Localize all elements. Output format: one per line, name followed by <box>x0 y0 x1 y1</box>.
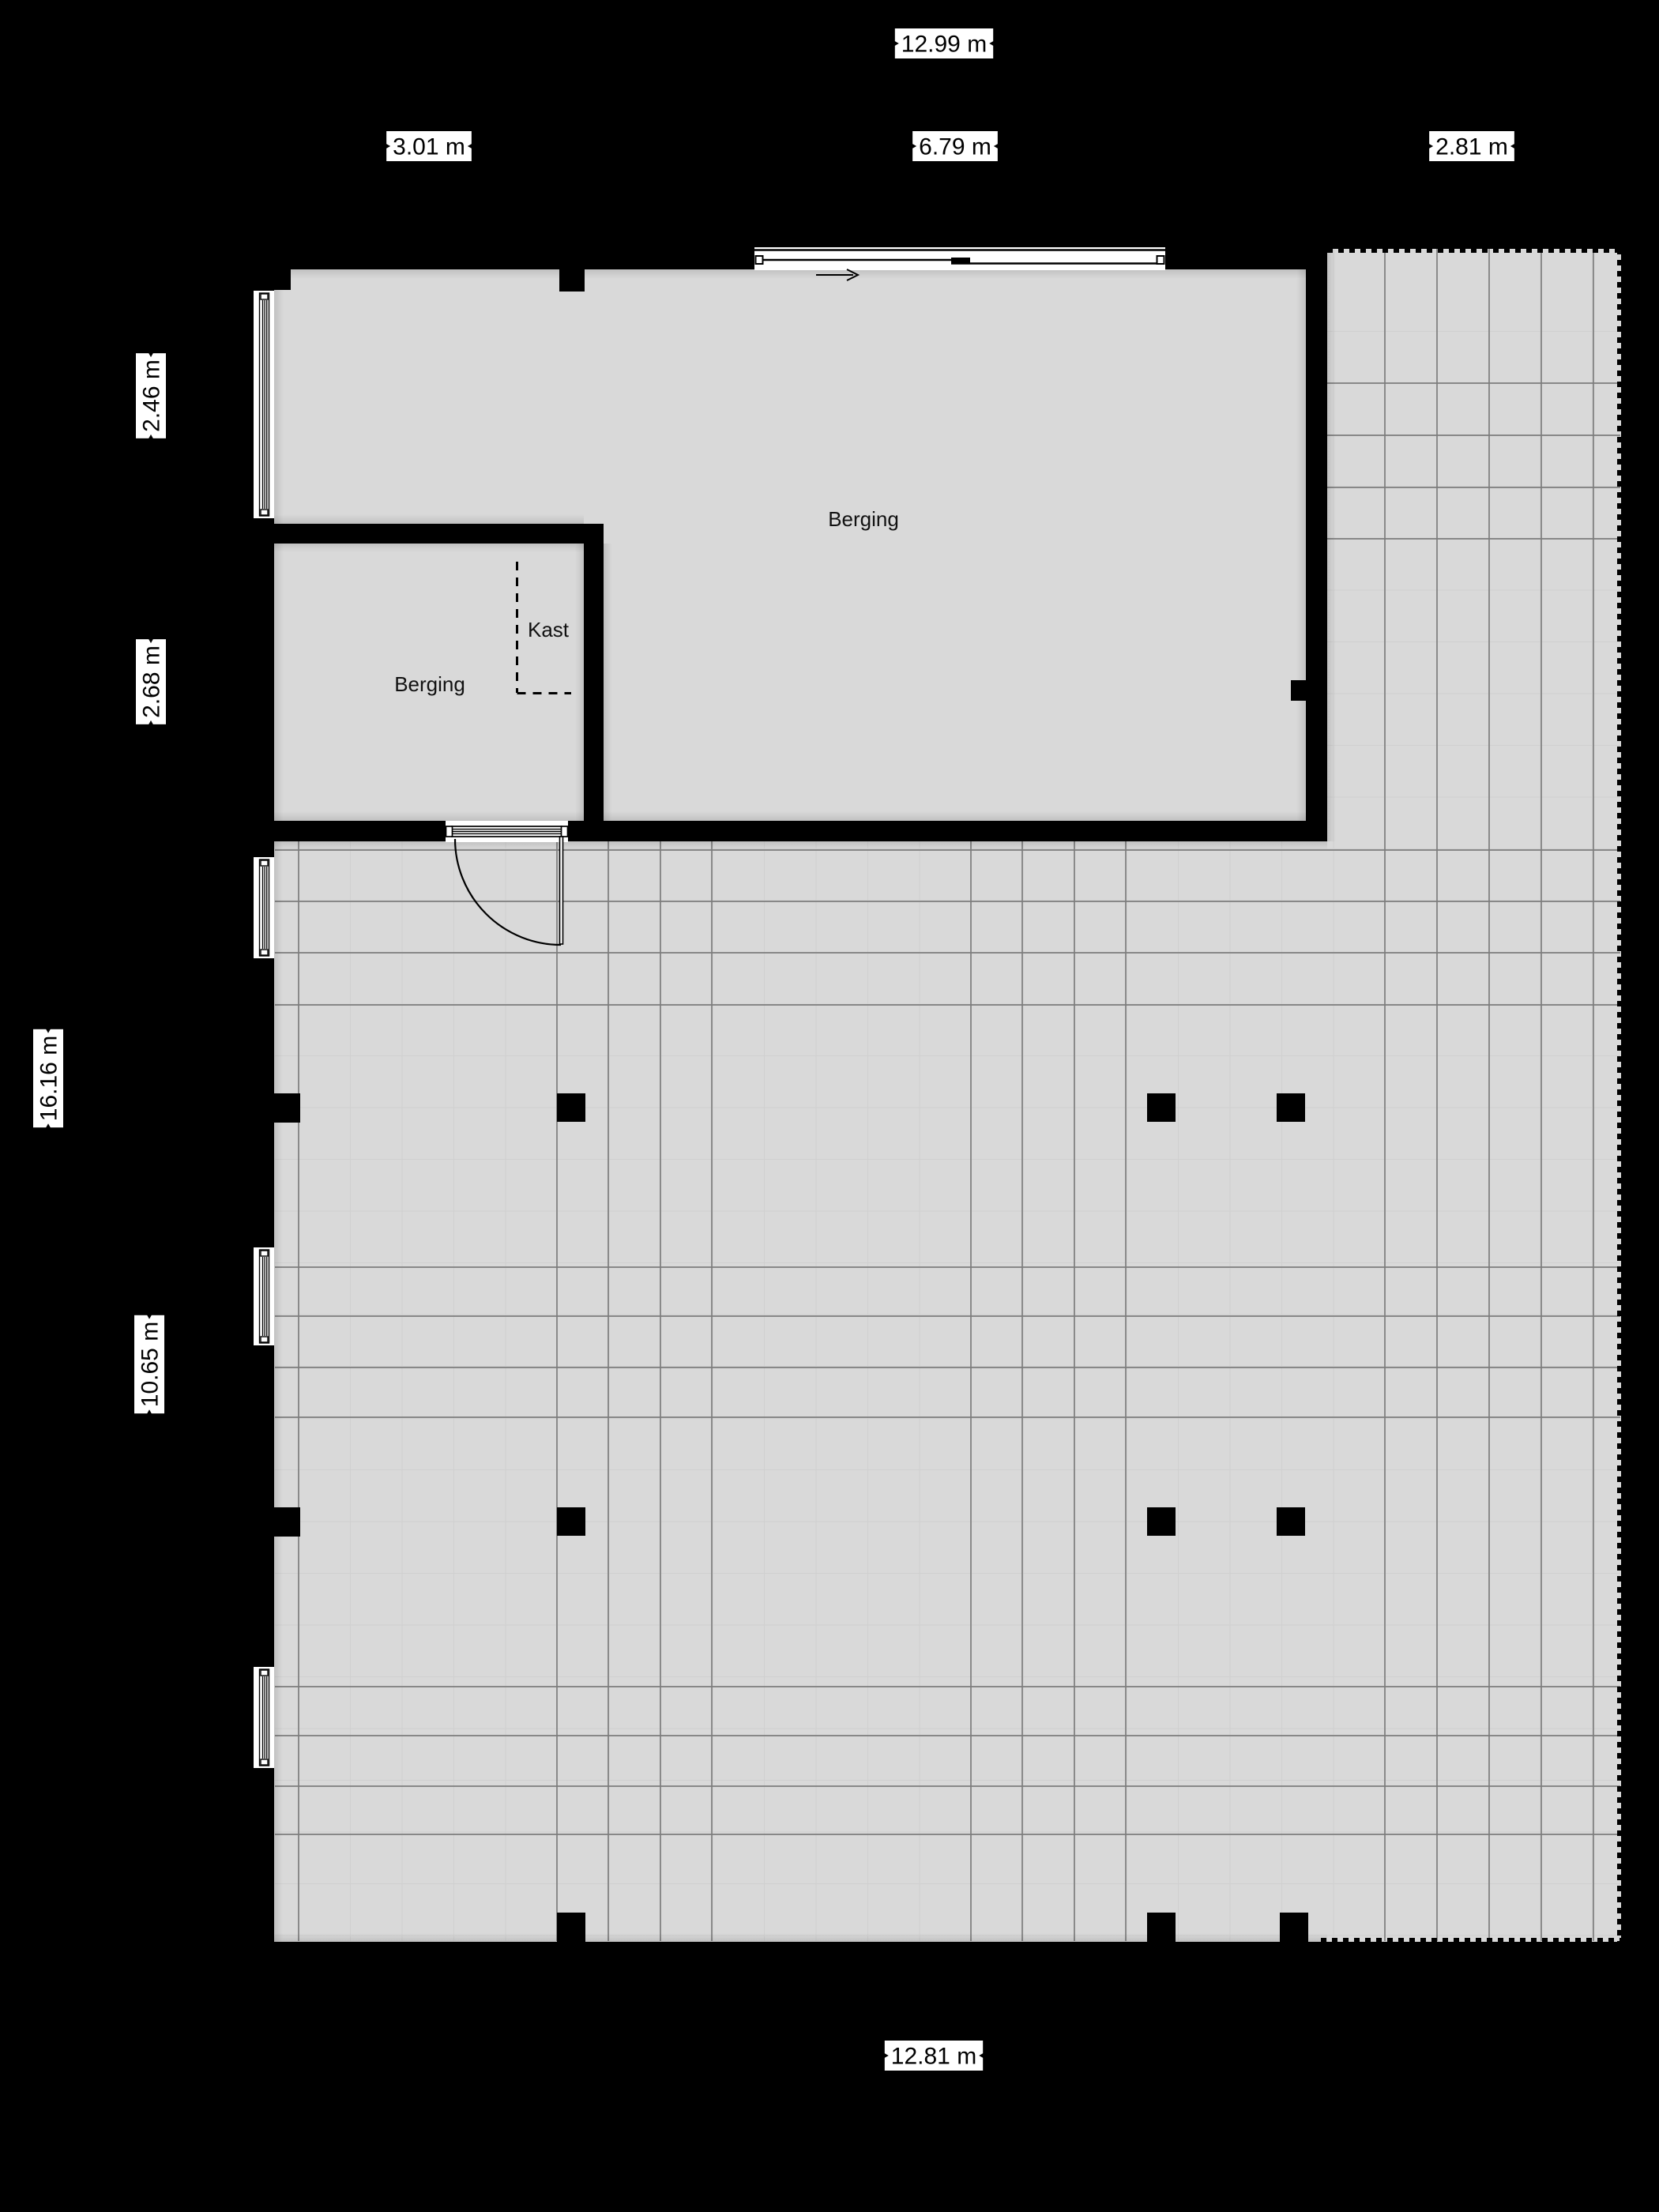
svg-text:12.81 m: 12.81 m <box>891 2044 976 2070</box>
svg-text:2.46 m: 2.46 m <box>139 359 165 432</box>
svg-text:2.81 m: 2.81 m <box>1435 134 1508 160</box>
svg-text:Berging: Berging <box>828 507 899 531</box>
svg-text:6.79 m: 6.79 m <box>919 134 991 160</box>
svg-text:3.01 m: 3.01 m <box>393 134 465 160</box>
svg-text:16.16 m: 16.16 m <box>36 1036 62 1121</box>
svg-text:Berging: Berging <box>394 672 465 696</box>
svg-text:12.99 m: 12.99 m <box>901 32 987 58</box>
svg-text:2.68 m: 2.68 m <box>139 645 165 718</box>
svg-text:10.65 m: 10.65 m <box>137 1322 164 1407</box>
svg-text:Kast: Kast <box>528 618 570 641</box>
